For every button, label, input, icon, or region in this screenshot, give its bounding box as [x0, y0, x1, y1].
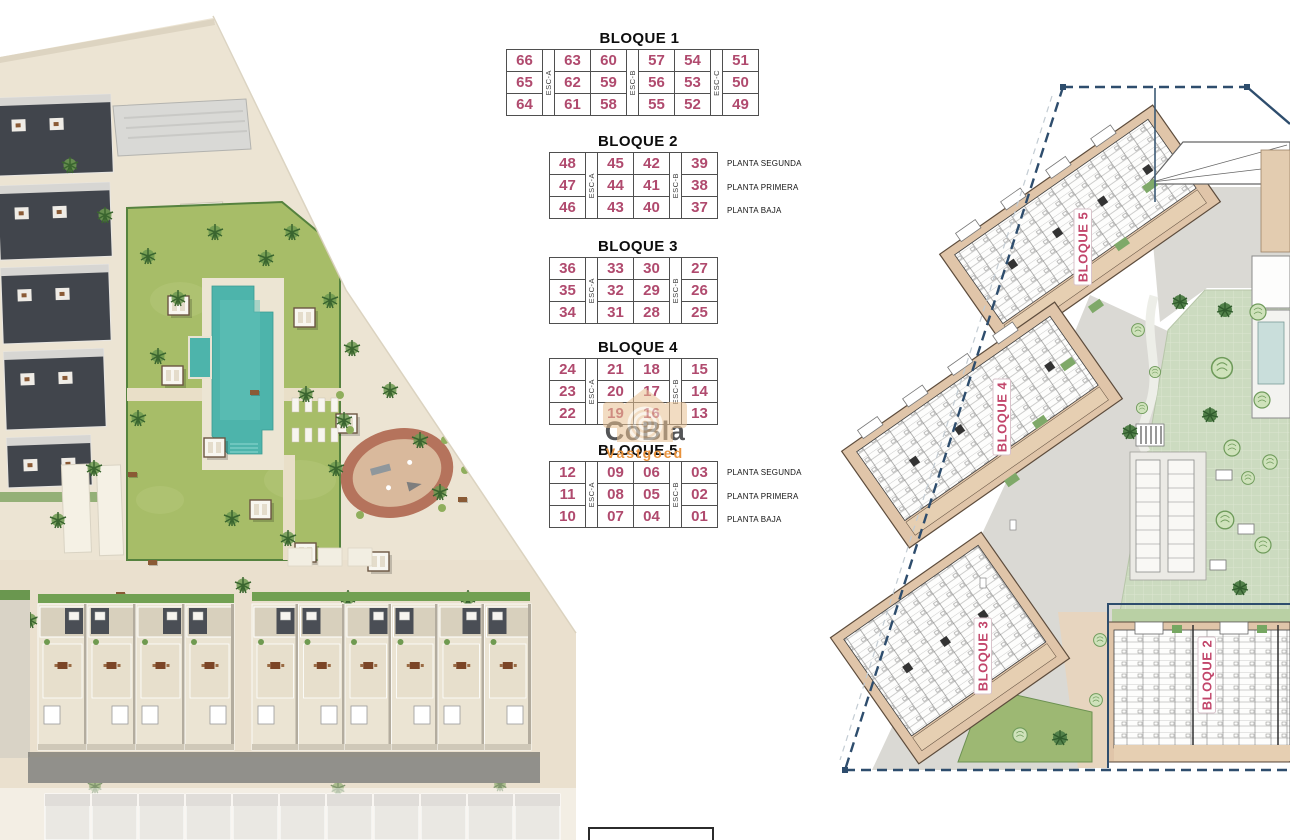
unit-number-cell: 18	[634, 359, 670, 381]
floor-labels: PLANTA SEGUNDAPLANTA PRIMERAPLANTA BAJA	[727, 152, 802, 223]
unit-number-table: 66ESC-A6360ESC-B5754ESC-C516562595653506…	[506, 49, 759, 116]
unit-number-cell: 55	[639, 94, 675, 116]
unit-number-cell: 66	[507, 50, 543, 72]
block-table-bloque-1: BLOQUE 166ESC-A6360ESC-B5754ESC-C5165625…	[506, 30, 773, 116]
stair-core-cell: ESC-A	[586, 462, 598, 528]
stair-core-cell: ESC-C	[711, 50, 723, 116]
unit-number-cell: 63	[555, 50, 591, 72]
stair-core-cell: ESC-B	[670, 258, 682, 324]
stair-core-cell: ESC-A	[586, 153, 598, 219]
unit-number-cell: 17	[634, 381, 670, 403]
unit-number-cell: 65	[507, 72, 543, 94]
stair-core-cell: ESC-B	[670, 359, 682, 425]
unit-number-cell: 22	[550, 403, 586, 425]
partial-legend-box	[588, 827, 714, 840]
floor-label: PLANTA SEGUNDA	[727, 461, 802, 485]
stair-core-cell: ESC-B	[670, 462, 682, 528]
stair-core-label: ESC-C	[712, 70, 721, 96]
block-table-bloque-2: BLOQUE 248ESC-A4542ESC-B3947444138464340…	[549, 133, 802, 223]
unit-number-cell: 25	[682, 302, 718, 324]
floor-label: PLANTA PRIMERA	[727, 485, 802, 509]
unit-number-cell: 54	[675, 50, 711, 72]
aerial-render	[0, 0, 580, 840]
unit-number-cell: 13	[682, 403, 718, 425]
unit-number-cell: 35	[550, 280, 586, 302]
unit-number-cell: 45	[598, 153, 634, 175]
floor-label: PLANTA BAJA	[727, 508, 802, 532]
site-plan: BLOQUE 5 BLOQUE 4 BLOQUE 3 BLOQUE 2	[780, 70, 1290, 780]
unit-number-table: 12ESC-A0906ESC-B031108050210070401	[549, 461, 718, 528]
stair-core-cell: ESC-A	[586, 258, 598, 324]
block-table-bloque-4: BLOQUE 424ESC-A2118ESC-B1523201714221916…	[549, 339, 727, 425]
unit-number-cell: 16	[634, 403, 670, 425]
stair-core-label: ESC-A	[587, 173, 596, 198]
svg-text:BLOQUE 5: BLOQUE 5	[1076, 212, 1091, 282]
unit-number-cell: 03	[682, 462, 718, 484]
unit-number-cell: 57	[639, 50, 675, 72]
townhouse-row	[38, 592, 531, 750]
unit-number-cell: 64	[507, 94, 543, 116]
unit-number-cell: 12	[550, 462, 586, 484]
unit-number-cell: 61	[555, 94, 591, 116]
unit-number-cell: 24	[550, 359, 586, 381]
parking-canopy	[113, 99, 251, 156]
unit-number-cell: 60	[591, 50, 627, 72]
unit-number-table: 24ESC-A2118ESC-B152320171422191613	[549, 358, 718, 425]
block-title: BLOQUE 2	[549, 133, 727, 150]
unit-number-cell: 30	[634, 258, 670, 280]
unit-number-cell: 43	[598, 197, 634, 219]
stair-core-label: ESC-B	[671, 379, 680, 404]
unit-number-cell: 02	[682, 484, 718, 506]
block-table-bloque-5: BLOQUE 512ESC-A0906ESC-B0311080502100704…	[549, 442, 802, 532]
unit-number-cell: 20	[598, 381, 634, 403]
block-title: BLOQUE 4	[549, 339, 727, 356]
unit-number-cell: 46	[550, 197, 586, 219]
unit-number-cell: 40	[634, 197, 670, 219]
unit-number-cell: 58	[591, 94, 627, 116]
stair-core-label: ESC-B	[628, 70, 637, 95]
unit-number-cell: 08	[598, 484, 634, 506]
road	[28, 757, 540, 783]
stair-core-label: ESC-A	[587, 482, 596, 507]
unit-number-cell: 41	[634, 175, 670, 197]
unit-number-cell: 14	[682, 381, 718, 403]
unit-number-cell: 28	[634, 302, 670, 324]
unit-number-cell: 11	[550, 484, 586, 506]
svg-text:BLOQUE 4: BLOQUE 4	[995, 382, 1010, 453]
unit-number-cell: 05	[634, 484, 670, 506]
unit-number-cell: 36	[550, 258, 586, 280]
unit-number-cell: 31	[598, 302, 634, 324]
stair-core-cell: ESC-A	[586, 359, 598, 425]
svg-text:BLOQUE 3: BLOQUE 3	[976, 621, 991, 691]
unit-number-cell: 50	[723, 72, 759, 94]
unit-number-cell: 15	[682, 359, 718, 381]
unit-number-cell: 21	[598, 359, 634, 381]
unit-number-cell: 07	[598, 506, 634, 528]
unit-number-cell: 23	[550, 381, 586, 403]
block-table-bloque-3: BLOQUE 336ESC-A3330ESC-B2735322926343128…	[549, 238, 727, 324]
block-title: BLOQUE 3	[549, 238, 727, 255]
unit-number-cell: 10	[550, 506, 586, 528]
block-title: BLOQUE 1	[506, 30, 773, 47]
unit-number-cell: 26	[682, 280, 718, 302]
unit-number-cell: 49	[723, 94, 759, 116]
unit-number-cell: 34	[550, 302, 586, 324]
unit-number-cell: 51	[723, 50, 759, 72]
stair-core-label: ESC-A	[544, 70, 553, 95]
unit-number-cell: 09	[598, 462, 634, 484]
plan-label-bloque-3: BLOQUE 3	[974, 618, 992, 694]
floor-labels: PLANTA SEGUNDAPLANTA PRIMERAPLANTA BAJA	[727, 461, 802, 532]
unit-number-cell: 37	[682, 197, 718, 219]
stair-core-cell: ESC-B	[627, 50, 639, 116]
stair-core-label: ESC-B	[671, 173, 680, 198]
unit-number-cell: 56	[639, 72, 675, 94]
stair-core-cell: ESC-B	[670, 153, 682, 219]
stair-core-label: ESC-B	[671, 482, 680, 507]
floor-label: PLANTA PRIMERA	[727, 176, 802, 200]
stair-core-cell: ESC-A	[543, 50, 555, 116]
plan-label-bloque-5: BLOQUE 5	[1074, 209, 1092, 285]
unit-number-cell: 53	[675, 72, 711, 94]
unit-number-cell: 62	[555, 72, 591, 94]
unit-number-cell: 39	[682, 153, 718, 175]
small-pool	[189, 337, 211, 378]
unit-number-cell: 27	[682, 258, 718, 280]
unit-number-cell: 06	[634, 462, 670, 484]
unit-number-cell: 44	[598, 175, 634, 197]
unit-number-cell: 33	[598, 258, 634, 280]
brochure-page: BLOQUE 166ESC-A6360ESC-B5754ESC-C5165625…	[0, 0, 1290, 840]
unit-number-cell: 47	[550, 175, 586, 197]
unit-number-table: 48ESC-A4542ESC-B394744413846434037	[549, 152, 718, 219]
plan-label-bloque-2: BLOQUE 2	[1198, 637, 1216, 713]
unit-number-cell: 52	[675, 94, 711, 116]
unit-number-cell: 29	[634, 280, 670, 302]
stair-core-label: ESC-A	[587, 379, 596, 404]
plan-label-bloque-4: BLOQUE 4	[993, 379, 1011, 455]
block-title: BLOQUE 5	[549, 442, 727, 459]
unit-number-cell: 48	[550, 153, 586, 175]
unit-number-cell: 42	[634, 153, 670, 175]
svg-text:BLOQUE 2: BLOQUE 2	[1200, 640, 1215, 710]
unit-number-cell: 19	[598, 403, 634, 425]
unit-number-cell: 01	[682, 506, 718, 528]
unit-number-table: 36ESC-A3330ESC-B273532292634312825	[549, 257, 718, 324]
unit-number-cell: 04	[634, 506, 670, 528]
unit-number-cell: 38	[682, 175, 718, 197]
unit-number-cell: 32	[598, 280, 634, 302]
floor-label: PLANTA BAJA	[727, 199, 802, 223]
stair-core-label: ESC-A	[587, 278, 596, 303]
floor-label: PLANTA SEGUNDA	[727, 152, 802, 176]
stair-core-label: ESC-B	[671, 278, 680, 303]
unit-number-cell: 59	[591, 72, 627, 94]
